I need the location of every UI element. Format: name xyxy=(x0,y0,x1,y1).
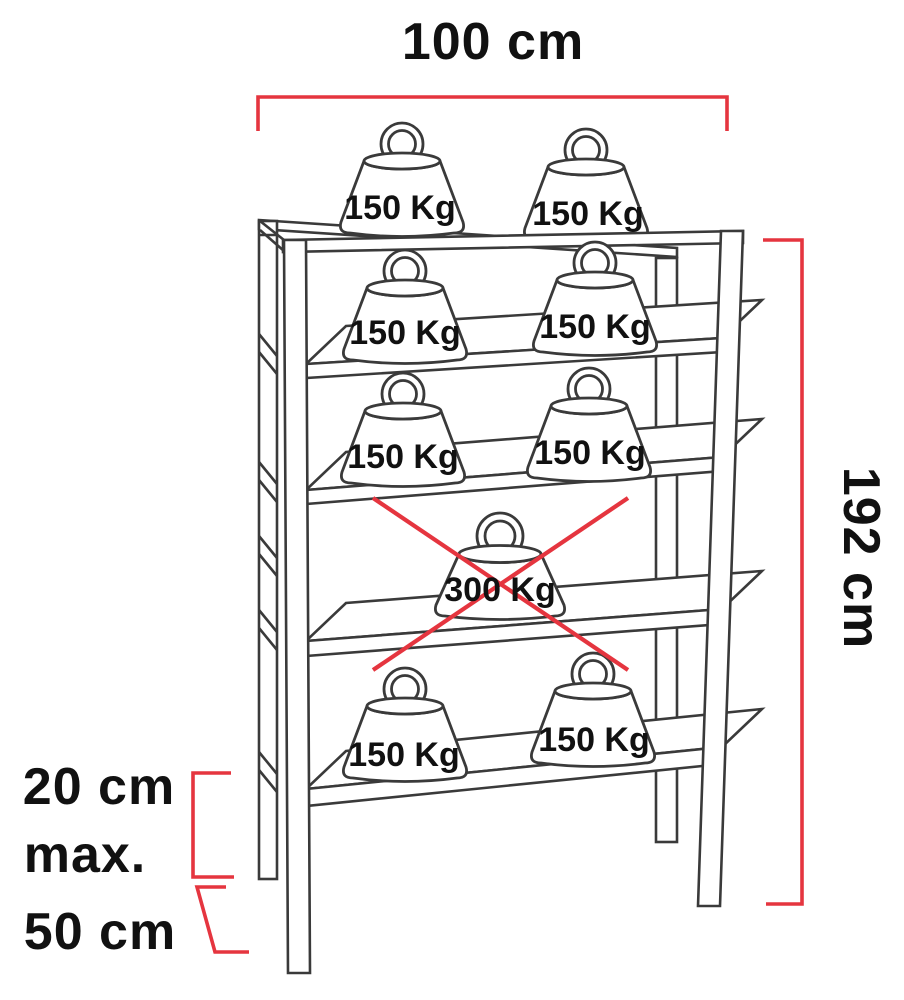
shelf-spacing-label-line2: max. xyxy=(24,829,147,881)
weight-label: 150 Kg xyxy=(349,316,461,350)
width-dimension-bracket xyxy=(258,97,727,131)
shelf-spacing-label-line1: 20 cm xyxy=(23,761,175,813)
bottom-clearance-bracket xyxy=(197,887,249,952)
bottom-clearance-label: 50 cm xyxy=(24,906,176,958)
weight-label: 150 Kg xyxy=(347,440,459,474)
width-dimension-label: 100 cm xyxy=(402,16,584,68)
weight-label: 150 Kg xyxy=(539,310,651,344)
weight-label: 150 Kg xyxy=(534,436,646,470)
weight-label: 150 Kg xyxy=(538,723,650,757)
weight-label: 150 Kg xyxy=(344,191,456,225)
height-dimension-label: 192 cm xyxy=(835,467,887,649)
weight-label: 150 Kg xyxy=(348,738,460,772)
shelving-load-diagram: 100 cm 192 cm 20 cm max. 50 cm 150 Kg 15… xyxy=(0,0,904,1000)
weight-label-prohibited: 300 Kg xyxy=(444,573,556,607)
shelf-spacing-bracket xyxy=(193,773,234,877)
weight-label: 150 Kg xyxy=(532,197,644,231)
height-dimension-bracket xyxy=(763,240,802,904)
